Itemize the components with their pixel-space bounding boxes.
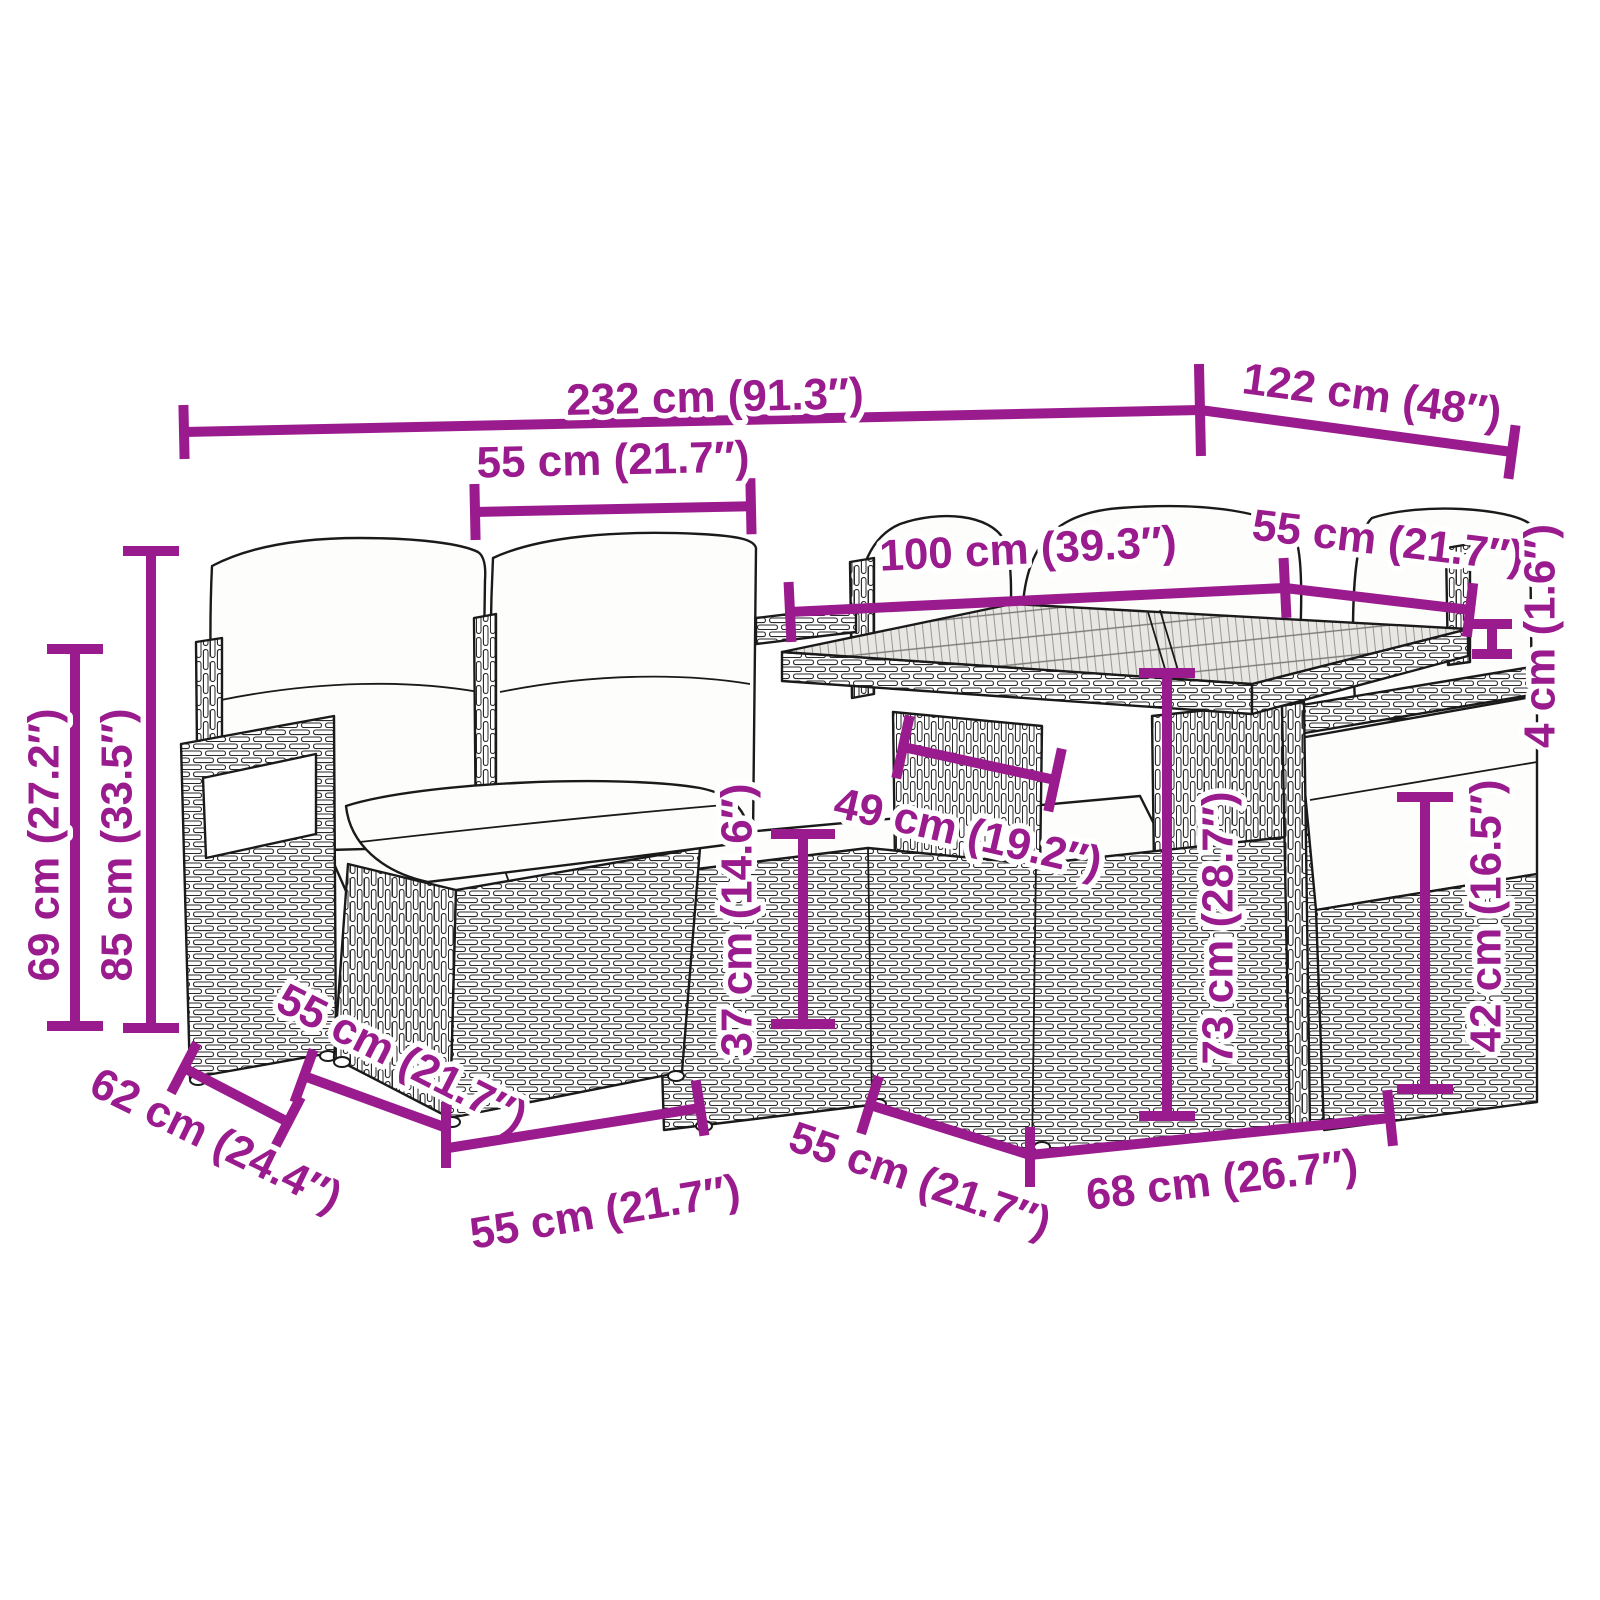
dimension-label-table-height: 73 cm (28.7″) bbox=[1194, 791, 1243, 1064]
dimension-label-back-cushion-width: 55 cm (21.7″) bbox=[476, 432, 750, 487]
dimension-label-ottoman-height: 37 cm (14.6″) bbox=[713, 783, 762, 1056]
dimension-backrest-height: 85 cm (33.5″) bbox=[93, 551, 180, 1028]
dimension-arm-height: 69 cm (27.2″) bbox=[20, 649, 104, 1026]
dimension-label-arm-height: 69 cm (27.2″) bbox=[20, 708, 69, 981]
dimension-label-ottoman-width: 55 cm (21.7″) bbox=[466, 1165, 743, 1258]
dimension-label-tabletop-thickness: 4 cm (1.6″) bbox=[1516, 524, 1565, 748]
dimension-label-backrest-height: 85 cm (33.5″) bbox=[93, 708, 142, 981]
base-band-body bbox=[656, 826, 1390, 1155]
dimension-back-cushion-width: 55 cm (21.7″) bbox=[474, 432, 751, 540]
dimension-diagram-page: 232 cm (91.3″) 122 cm (48″) 55 cm (21.7″… bbox=[0, 0, 1600, 1600]
furniture-dimension-diagram: 232 cm (91.3″) 122 cm (48″) 55 cm (21.7″… bbox=[0, 0, 1600, 1600]
dimension-label-seat-height: 42 cm (16.5″) bbox=[1462, 779, 1511, 1052]
ottoman-foot-3 bbox=[668, 1071, 684, 1081]
dimension-label-overall-width: 232 cm (91.3″) bbox=[566, 369, 865, 425]
ottoman-foot-1 bbox=[334, 1057, 350, 1067]
dimension-overall-depth: 122 cm (48″) bbox=[1196, 354, 1515, 479]
base-band bbox=[656, 826, 1390, 1155]
dimension-label-table-base-width: 68 cm (26.7″) bbox=[1084, 1140, 1361, 1220]
